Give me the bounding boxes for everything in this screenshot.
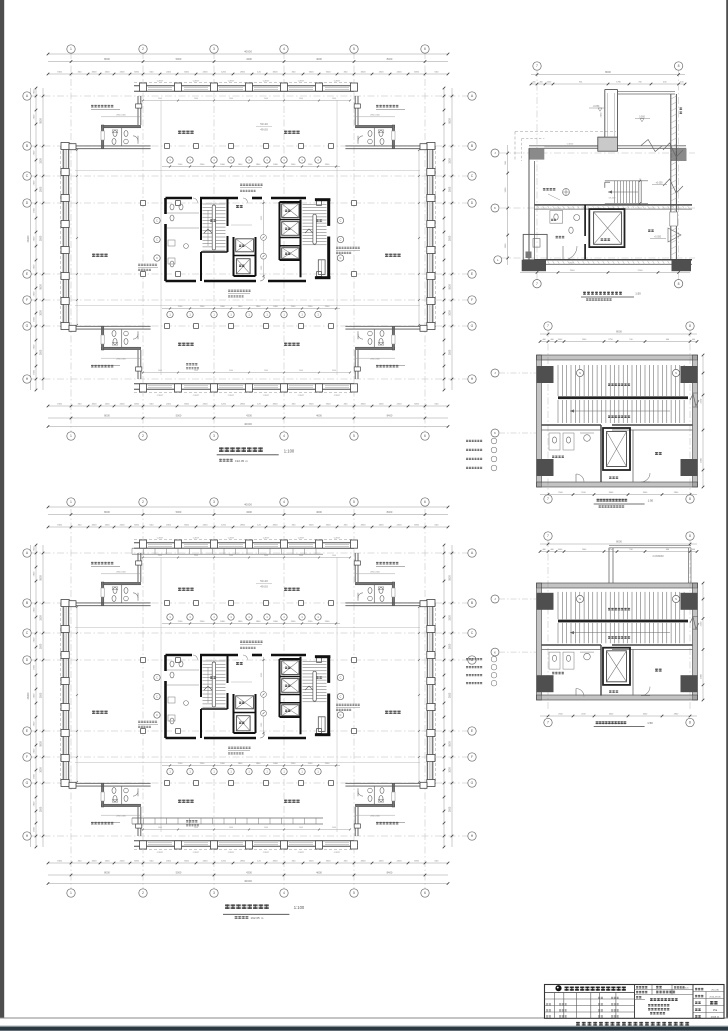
svg-text:8: 8 [689, 497, 691, 501]
svg-text:4: 4 [283, 47, 285, 51]
svg-text:1200: 1200 [221, 861, 227, 863]
svg-text:1300: 1300 [105, 72, 111, 74]
svg-text:2800: 2800 [39, 806, 42, 812]
svg-text:C: C [156, 220, 158, 223]
svg-text:3050: 3050 [134, 404, 140, 406]
svg-text:5: 5 [353, 500, 355, 504]
svg-text:3000: 3000 [448, 310, 451, 316]
svg-text:2400: 2400 [166, 861, 172, 863]
svg-text:2800: 2800 [240, 72, 246, 74]
svg-text:7: 7 [536, 282, 538, 286]
svg-text:40000: 40000 [244, 50, 252, 54]
svg-text:2: 2 [142, 500, 144, 504]
svg-text:5800: 5800 [39, 118, 42, 124]
svg-text:5000: 5000 [176, 57, 182, 61]
svg-text:C2827: C2827 [228, 81, 235, 83]
svg-text:2: 2 [142, 891, 144, 895]
svg-text:58+560: 58+560 [609, 198, 617, 200]
svg-text:2400: 2400 [229, 370, 233, 372]
svg-text:C2827: C2827 [334, 81, 341, 83]
svg-text:5000: 5000 [176, 414, 182, 418]
svg-text:40000: 40000 [244, 879, 252, 883]
svg-text:8000: 8000 [605, 70, 611, 74]
svg-text:C: C [156, 714, 158, 717]
svg-text:K: K [494, 206, 496, 210]
svg-text:7400: 7400 [326, 404, 332, 406]
svg-text:F: F [471, 298, 473, 302]
svg-text:2850 2400: 2850 2400 [116, 115, 126, 117]
svg-text:2016.11: 2016.11 [711, 1016, 720, 1019]
svg-text:1:50: 1:50 [647, 721, 653, 725]
svg-text:5000: 5000 [176, 871, 182, 875]
svg-text:1: 1 [70, 47, 72, 51]
svg-text:2800: 2800 [448, 806, 451, 812]
svg-text:2800: 2800 [448, 643, 451, 649]
svg-text:40000: 40000 [244, 503, 252, 507]
svg-text:2400: 2400 [120, 404, 126, 406]
svg-text:3000: 3000 [184, 525, 190, 527]
svg-text:8000: 8000 [616, 330, 622, 334]
svg-text:G: G [471, 781, 474, 785]
svg-text:C: C [340, 257, 342, 260]
svg-text:C2827: C2827 [193, 852, 200, 854]
svg-text:3: 3 [213, 891, 215, 895]
svg-text:4: 4 [283, 500, 285, 504]
svg-text:1300: 1300 [105, 404, 111, 406]
svg-text:C2827: C2827 [193, 538, 200, 540]
svg-text:3400: 3400 [361, 861, 367, 863]
svg-text:7400: 7400 [309, 861, 315, 863]
svg-text:1300: 1300 [105, 525, 111, 527]
svg-text:C2827: C2827 [193, 395, 200, 397]
svg-text:5000: 5000 [176, 510, 182, 514]
svg-text:C: C [340, 239, 342, 242]
svg-text:C: C [156, 257, 158, 260]
svg-text:4600: 4600 [316, 871, 322, 875]
svg-text:4600: 4600 [316, 414, 322, 418]
svg-text:2400: 2400 [397, 404, 403, 406]
svg-text:7400: 7400 [57, 861, 63, 863]
svg-text:5800: 5800 [448, 118, 451, 124]
svg-text:3400: 3400 [92, 525, 98, 527]
svg-text:2400: 2400 [397, 525, 403, 527]
svg-text:7400: 7400 [57, 404, 63, 406]
svg-text:2800: 2800 [39, 235, 42, 241]
svg-text:C2827: C2827 [193, 81, 200, 83]
svg-text:C2827: C2827 [298, 852, 305, 854]
svg-text:3400: 3400 [92, 404, 98, 406]
svg-text:6: 6 [424, 434, 426, 438]
svg-text:2400: 2400 [203, 72, 209, 74]
svg-text:8000: 8000 [104, 510, 110, 514]
svg-text:C2827: C2827 [263, 852, 270, 854]
svg-text:2400: 2400 [203, 404, 209, 406]
svg-text:2400: 2400 [203, 525, 209, 527]
svg-text:7400: 7400 [57, 72, 63, 74]
svg-text:8: 8 [689, 324, 691, 328]
svg-text:8: 8 [678, 282, 680, 286]
svg-text:2800: 2800 [448, 692, 451, 698]
svg-text:192.05: 192.05 [251, 916, 261, 920]
svg-text:F: F [471, 755, 473, 759]
svg-text:1300: 1300 [105, 861, 111, 863]
svg-text:2800: 2800 [448, 235, 451, 241]
svg-text:C: C [340, 714, 342, 717]
svg-text:4300: 4300 [246, 510, 252, 514]
svg-text:3000: 3000 [448, 767, 451, 773]
svg-text:8: 8 [678, 64, 680, 68]
svg-text:2400: 2400 [229, 98, 233, 100]
svg-text:1:100: 1:100 [294, 905, 305, 910]
svg-text:2800: 2800 [240, 404, 246, 406]
svg-text:7400: 7400 [326, 861, 332, 863]
svg-text:8400: 8400 [387, 57, 393, 61]
svg-text:C2827: C2827 [228, 395, 235, 397]
svg-text:4300: 4300 [246, 871, 252, 875]
svg-text:2400: 2400 [166, 72, 172, 74]
svg-text:C3050: C3050 [567, 143, 574, 145]
svg-text:3050: 3050 [134, 72, 140, 74]
svg-text:3050: 3050 [414, 404, 420, 406]
svg-text:7400: 7400 [309, 525, 315, 527]
svg-text:5800: 5800 [448, 741, 451, 747]
svg-text:2800: 2800 [39, 643, 42, 649]
svg-text:192.05: 192.05 [235, 459, 245, 463]
svg-text:4600: 4600 [316, 57, 322, 61]
svg-text:28000: 28000 [27, 692, 30, 699]
svg-text:2400: 2400 [158, 98, 162, 100]
svg-text:2850 2400: 2850 2400 [116, 572, 126, 574]
svg-text:2800: 2800 [448, 349, 451, 355]
svg-text:49.00: 49.00 [260, 585, 268, 589]
svg-text:C2827: C2827 [263, 81, 270, 83]
svg-text:C: C [340, 696, 342, 699]
svg-text:1300: 1300 [379, 404, 385, 406]
svg-text:3300: 3300 [39, 615, 42, 621]
svg-text:2800: 2800 [39, 349, 42, 355]
svg-text:2400: 2400 [194, 370, 198, 372]
svg-text:C2827: C2827 [334, 395, 341, 397]
svg-text:8400: 8400 [387, 871, 393, 875]
svg-text:1: 1 [70, 891, 72, 895]
svg-text:2400: 2400 [166, 404, 172, 406]
svg-text:14-0866-05: 14-0866-05 [679, 988, 688, 990]
svg-text:2800: 2800 [240, 525, 246, 527]
svg-text:C: C [340, 220, 342, 223]
svg-text:5: 5 [353, 434, 355, 438]
svg-text:2400: 2400 [332, 370, 336, 372]
svg-text:2400: 2400 [397, 861, 403, 863]
svg-text:3400: 3400 [273, 525, 279, 527]
svg-text:3300: 3300 [448, 158, 451, 164]
svg-text:3: 3 [213, 434, 215, 438]
svg-text:2400: 2400 [264, 555, 268, 557]
svg-text:5: 5 [353, 47, 355, 51]
svg-text:2400: 2400 [397, 72, 403, 74]
svg-text:3300: 3300 [448, 615, 451, 621]
svg-text:2400: 2400 [299, 370, 303, 372]
svg-text:3000: 3000 [184, 72, 190, 74]
svg-text:K: K [494, 650, 496, 654]
svg-text:7: 7 [547, 534, 549, 538]
svg-text:2800: 2800 [39, 186, 42, 192]
svg-text:2400: 2400 [120, 861, 126, 863]
svg-text:C: C [156, 696, 158, 699]
svg-text:1300: 1300 [379, 72, 385, 74]
svg-text:8000: 8000 [104, 57, 110, 61]
svg-text:5: 5 [353, 891, 355, 895]
svg-text:2400: 2400 [332, 555, 336, 557]
svg-text:2400: 2400 [299, 827, 303, 829]
svg-text:8: 8 [689, 721, 691, 725]
svg-text:C2827: C2827 [298, 81, 305, 83]
svg-text:6: 6 [424, 47, 426, 51]
svg-text:2400: 2400 [264, 827, 268, 829]
svg-text:1200: 1200 [221, 404, 227, 406]
svg-text:3000: 3000 [184, 861, 190, 863]
svg-text:2400: 2400 [264, 98, 268, 100]
svg-text:3: 3 [213, 47, 215, 51]
svg-text:C: C [340, 677, 342, 680]
svg-text:2850 2400: 2850 2400 [370, 572, 380, 574]
svg-text:-0.050: -0.050 [593, 106, 600, 108]
svg-text:2400: 2400 [120, 72, 126, 74]
svg-text:49.00: 49.00 [260, 128, 268, 132]
svg-text:G: G [26, 324, 29, 328]
svg-text:3: 3 [213, 500, 215, 504]
svg-text:2800: 2800 [448, 186, 451, 192]
svg-text:1200: 1200 [221, 72, 227, 74]
svg-text:7: 7 [547, 721, 549, 725]
svg-text:4: 4 [283, 434, 285, 438]
svg-text:4600: 4600 [316, 510, 322, 514]
svg-text:+0.050: +0.050 [655, 183, 663, 185]
svg-text:3000: 3000 [39, 767, 42, 773]
svg-text:7400: 7400 [309, 72, 315, 74]
svg-text:2400: 2400 [264, 370, 268, 372]
svg-text:3400: 3400 [273, 404, 279, 406]
svg-text:S: S [675, 371, 677, 375]
svg-text:4300: 4300 [246, 57, 252, 61]
svg-text:7400: 7400 [57, 525, 63, 527]
svg-text:2400: 2400 [203, 861, 209, 863]
svg-text:1:50: 1:50 [635, 292, 641, 296]
svg-text:2400: 2400 [332, 98, 336, 100]
svg-text:K: K [494, 431, 496, 435]
svg-text:7: 7 [547, 324, 549, 328]
svg-text:8000: 8000 [616, 540, 622, 544]
svg-text:3050: 3050 [414, 72, 420, 74]
svg-text:8000: 8000 [104, 871, 110, 875]
svg-text:+0.050: +0.050 [654, 237, 662, 239]
svg-text:F: F [26, 298, 28, 302]
svg-text:3000: 3000 [184, 404, 190, 406]
svg-text:7400: 7400 [326, 525, 332, 527]
svg-text:2850 2400: 2850 2400 [370, 359, 380, 361]
svg-text:S: S [579, 597, 581, 601]
svg-text:2850 2400: 2850 2400 [116, 816, 126, 818]
svg-text:3400: 3400 [361, 525, 367, 527]
svg-text:3400: 3400 [273, 72, 279, 74]
svg-text:C2827: C2827 [157, 538, 164, 540]
svg-text:1300: 1300 [379, 525, 385, 527]
svg-text:7400: 7400 [309, 404, 315, 406]
svg-text:2400: 2400 [158, 370, 162, 372]
svg-text:1300: 1300 [379, 861, 385, 863]
svg-text:C: C [156, 239, 158, 242]
svg-text:3050: 3050 [134, 861, 140, 863]
svg-text:G: G [26, 781, 29, 785]
svg-text:2.0X600M: 2.0X600M [653, 555, 664, 558]
svg-text:2100: 2100 [638, 270, 644, 272]
svg-text:2400: 2400 [158, 827, 162, 829]
svg-text:2014-09-06: 2014-09-06 [709, 997, 721, 999]
svg-text:7: 7 [536, 64, 538, 68]
svg-text:G: G [471, 324, 474, 328]
svg-text:C2827: C2827 [263, 538, 270, 540]
svg-text:C: C [156, 677, 158, 680]
svg-text:4: 4 [283, 891, 285, 895]
svg-text:8000: 8000 [104, 414, 110, 418]
svg-text:50.40: 50.40 [260, 122, 268, 126]
svg-text:2400: 2400 [166, 525, 172, 527]
svg-text:4300: 4300 [246, 414, 252, 418]
svg-text:15a: 15a [713, 1008, 718, 1012]
svg-text:6: 6 [424, 500, 426, 504]
svg-text:C2827: C2827 [228, 852, 235, 854]
svg-text:F: F [26, 755, 28, 759]
svg-text:1200: 1200 [221, 525, 227, 527]
svg-text:5800: 5800 [39, 741, 42, 747]
svg-text:C2827: C2827 [157, 81, 164, 83]
svg-text:2400: 2400 [299, 98, 303, 100]
svg-text:3050: 3050 [414, 525, 420, 527]
svg-text:C2827: C2827 [334, 852, 341, 854]
svg-text:2400: 2400 [194, 555, 198, 557]
svg-text:0.000: 0.000 [639, 117, 645, 119]
svg-text:8: 8 [689, 534, 691, 538]
svg-text:7400: 7400 [326, 72, 332, 74]
svg-text:2850 2400: 2850 2400 [116, 359, 126, 361]
svg-text:5800: 5800 [448, 575, 451, 581]
svg-text:2: 2 [142, 434, 144, 438]
svg-text:1:50: 1:50 [648, 499, 654, 503]
svg-text:3400: 3400 [361, 404, 367, 406]
svg-text:28000: 28000 [27, 235, 30, 242]
svg-text:2: 2 [142, 47, 144, 51]
svg-text:1: 1 [70, 500, 72, 504]
svg-text:2400: 2400 [229, 827, 233, 829]
svg-text:2800: 2800 [39, 692, 42, 698]
svg-text:C2827: C2827 [298, 538, 305, 540]
svg-text:3400: 3400 [361, 72, 367, 74]
svg-text:7: 7 [547, 497, 549, 501]
svg-text:3050: 3050 [414, 861, 420, 863]
svg-text:2400: 2400 [158, 555, 162, 557]
svg-text:3400: 3400 [273, 861, 279, 863]
svg-text:2400: 2400 [194, 827, 198, 829]
svg-text:3300: 3300 [39, 158, 42, 164]
svg-text:3050: 3050 [134, 525, 140, 527]
svg-text:S: S [579, 371, 581, 375]
svg-text:2400: 2400 [299, 555, 303, 557]
svg-text:50.40: 50.40 [260, 579, 268, 583]
svg-text:7500: 7500 [570, 270, 576, 272]
svg-text:3400: 3400 [92, 861, 98, 863]
svg-text:1: 1 [70, 434, 72, 438]
svg-text:5800: 5800 [39, 575, 42, 581]
svg-text:29-1-96: 29-1-96 [711, 990, 719, 992]
svg-text:8400: 8400 [387, 510, 393, 514]
svg-text:C2827: C2827 [157, 852, 164, 854]
svg-text:2400: 2400 [229, 555, 233, 557]
svg-text:2400: 2400 [194, 98, 198, 100]
svg-text:3000: 3000 [39, 310, 42, 316]
svg-text:5800: 5800 [448, 284, 451, 290]
svg-text:2400: 2400 [120, 525, 126, 527]
svg-text:C2827: C2827 [263, 395, 270, 397]
svg-text:C2827: C2827 [157, 395, 164, 397]
svg-text:S: S [675, 597, 677, 601]
svg-text:C2827: C2827 [298, 395, 305, 397]
svg-text:6: 6 [424, 891, 426, 895]
svg-text:C2827: C2827 [334, 538, 341, 540]
svg-text:8400: 8400 [387, 414, 393, 418]
svg-text:C2827: C2827 [228, 538, 235, 540]
svg-text:5800: 5800 [39, 284, 42, 290]
svg-text:2850 2400: 2850 2400 [370, 816, 380, 818]
svg-text:2800: 2800 [240, 861, 246, 863]
svg-text:1:100: 1:100 [284, 448, 295, 453]
svg-text:3400: 3400 [92, 72, 98, 74]
svg-text:40000: 40000 [244, 422, 252, 426]
svg-text:2850 2400: 2850 2400 [370, 115, 380, 117]
svg-text:2400: 2400 [332, 827, 336, 829]
